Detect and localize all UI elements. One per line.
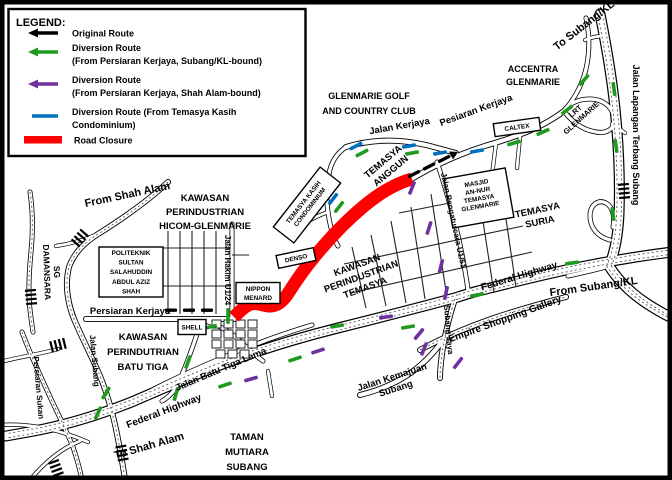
poi-nippon-menard: NIPPONMENARD <box>236 283 280 304</box>
label-jalan-lapangan-terbang: Jalan Lapangan Terbang Subang <box>631 65 641 206</box>
label-taman-mutiara-subang: TAMANMUTIARASUBANG <box>225 432 269 473</box>
label-jalan-hakim: Jalan Hakim U1/24 <box>223 235 232 306</box>
legend-item-blue-line1: Diversion Route (From Temasya Kasih <box>72 107 236 117</box>
legend: LEGEND: Original Route Diversion Route (… <box>9 9 306 156</box>
legend-item-purple-line2: (From Persiaran Kerjaya, Shah Alam-bound… <box>72 88 261 98</box>
legend-item-blue-line2: Condominium) <box>72 120 136 130</box>
legend-item-green-line1: Diversion Route <box>72 43 141 53</box>
diversion-map: POLITEKNIKSULTANSALAHUDDINABDUL AZIZSHAH… <box>0 0 672 480</box>
legend-swatch-road-closure-icon <box>24 136 62 144</box>
legend-item-original-route: Original Route <box>72 29 134 39</box>
poi-politeknik: POLITEKNIKSULTANSALAHUDDINABDUL AZIZSHAH <box>99 247 163 297</box>
poi-shell: SHELL <box>178 320 206 335</box>
poi-shell-label: SHELL <box>182 324 203 331</box>
legend-heading: LEGEND: <box>16 17 66 29</box>
label-persiaran-kerjaya: Persiaran Kerjaya <box>90 306 171 317</box>
legend-item-road-closure: Road Closure <box>74 136 133 146</box>
legend-item-green-line2: (From Persiaran Kerjaya, Subang/KL-bound… <box>72 56 262 66</box>
map-stage: POLITEKNIKSULTANSALAHUDDINABDUL AZIZSHAH… <box>0 0 672 480</box>
legend-item-purple-line1: Diversion Route <box>72 75 141 85</box>
